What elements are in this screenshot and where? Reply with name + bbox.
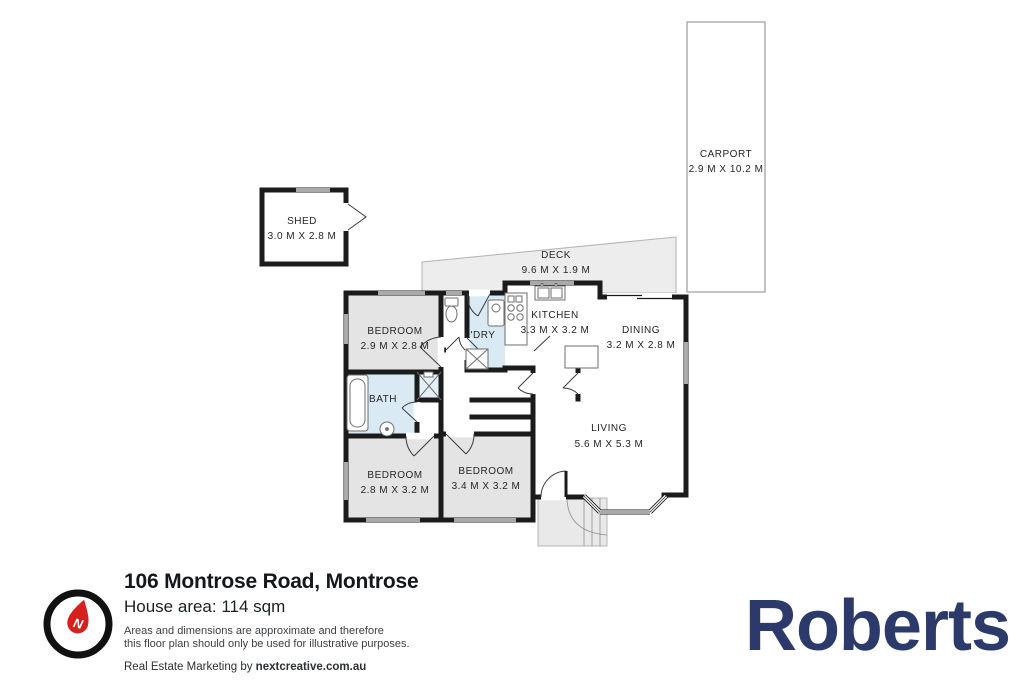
bath-sink-icon — [380, 422, 394, 436]
laundry-tub-icon — [488, 300, 504, 326]
label-bath: BATH — [369, 394, 397, 405]
footer: N 106 Montrose Road, Montrose House area… — [40, 586, 418, 673]
shed-outline — [262, 190, 346, 264]
marketing-credit: Real Estate Marketing by nextcreative.co… — [124, 661, 418, 673]
washer-icon — [466, 349, 488, 369]
bedroom3-floor — [441, 434, 533, 520]
house-area: House area: 114 sqm — [124, 597, 418, 617]
toilet-icon — [445, 298, 458, 322]
credit-prefix: Real Estate Marketing by — [124, 661, 256, 673]
agency-logo: Roberts — [745, 590, 1010, 662]
disclaimer-text: Areas and dimensions are approximate and… — [124, 625, 418, 651]
shed-door — [348, 204, 366, 230]
kitchen-peninsula — [565, 346, 598, 368]
property-address: 106 Montrose Road, Montrose — [124, 570, 418, 594]
label-ldry: L'DRY — [465, 330, 496, 341]
bathtub-icon — [347, 375, 368, 431]
credit-brand: nextcreative.com.au — [256, 661, 367, 673]
disclaimer-line1: Areas and dimensions are approximate and… — [124, 625, 418, 638]
stove-icon — [505, 293, 527, 345]
compass-icon: N — [40, 586, 116, 662]
kitchen-sink-icon — [535, 284, 565, 300]
floor-plan: SHED3.0 M X 2.8 M CARPORT2.9 M X 10.2 M … — [0, 0, 1024, 565]
disclaimer-line2: this floor plan should only be used for … — [124, 638, 418, 651]
